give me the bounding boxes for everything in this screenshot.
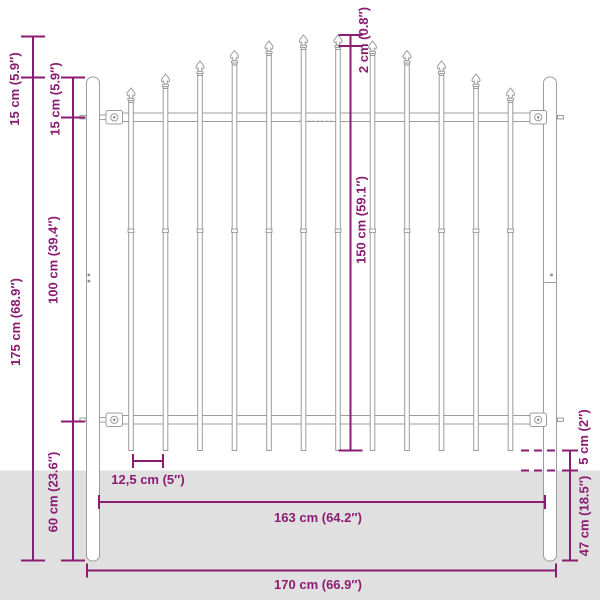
bottom-right-bracket <box>530 413 564 427</box>
fence-bar-6 <box>300 35 308 451</box>
spear-base <box>336 48 341 50</box>
fence-bar-8 <box>369 41 377 451</box>
spear-base <box>405 63 410 65</box>
spear-finial-icon <box>300 35 308 45</box>
fence-bar-11 <box>472 74 480 451</box>
spear-base <box>232 63 237 65</box>
bar-joint-sleeve <box>335 229 341 232</box>
fence-bar-5 <box>265 41 273 451</box>
dim-label-total-width: 170 cm (66.9″) <box>274 577 362 592</box>
bar-joint-sleeve <box>197 229 203 232</box>
right-post <box>544 77 557 561</box>
bar-shaft <box>508 102 513 450</box>
spear-base <box>508 101 513 103</box>
bar-shaft <box>198 75 203 450</box>
dim-label-post-underground: 47 cm (18.5″) <box>577 476 592 557</box>
dim-label-arch-rise: 15 cm (5.9″) <box>7 52 22 125</box>
dim-label-rail-to-rail: 100 cm (39.4″) <box>46 216 61 304</box>
spear-finial-icon <box>507 88 515 98</box>
bar-shaft <box>232 65 237 451</box>
bar-shaft <box>439 75 444 450</box>
spear-finial-icon <box>162 74 170 84</box>
spear-base <box>439 74 444 76</box>
spear-finial-icon <box>231 51 239 61</box>
fence-bar-7 <box>334 35 342 451</box>
dim-label-post-top-to-rail: 15 cm (5.9″) <box>48 62 63 135</box>
fence-bar-10 <box>438 61 446 451</box>
spear-base <box>267 54 272 56</box>
bar-shaft <box>129 102 134 450</box>
diagram-canvas: 15 cm (5.9″) 15 cm (5.9″) 175 cm (68.9″)… <box>0 0 600 600</box>
spear-finial-icon <box>265 41 273 51</box>
spear-finial-icon <box>127 88 135 98</box>
bar-joint-sleeve <box>439 229 445 232</box>
bar-joint-sleeve <box>266 229 272 232</box>
dim-label-rail-to-post-bottom: 60 cm (23.6″) <box>46 452 61 533</box>
bar-joint-sleeve <box>404 229 410 232</box>
bar-shaft <box>405 65 410 451</box>
bar-shaft <box>301 49 306 450</box>
spear-base <box>129 101 134 103</box>
bar-shaft <box>267 55 272 450</box>
fence-bars <box>127 35 514 451</box>
bar-shaft <box>370 55 375 450</box>
spear-finial-icon <box>196 61 204 71</box>
dim-label-bar-step: 2 cm (0.8″) <box>356 7 371 73</box>
dim-label-bar-length: 150 cm (59.1″) <box>354 176 369 264</box>
bar-shaft <box>474 88 479 450</box>
spear-base <box>163 87 168 89</box>
fence-dimension-diagram: 15 cm (5.9″) 15 cm (5.9″) 175 cm (68.9″)… <box>0 0 600 600</box>
fence-bar-1 <box>127 88 135 451</box>
left-post <box>87 77 100 561</box>
bar-joint-sleeve <box>370 229 376 232</box>
bar-shaft <box>336 49 341 450</box>
fence-bar-4 <box>231 51 239 451</box>
bar-joint-sleeve <box>301 229 307 232</box>
fence-bar-9 <box>403 51 411 451</box>
bottom-rail <box>122 416 531 425</box>
spear-finial-icon <box>472 74 480 84</box>
dim-label-inner-width: 163 cm (64.2″) <box>274 510 362 525</box>
spear-finial-icon <box>334 35 342 45</box>
bar-joint-sleeve <box>473 229 479 232</box>
fence-bar-12 <box>507 88 515 451</box>
left-post-screw-icon <box>88 274 91 277</box>
bar-shaft <box>163 88 168 450</box>
spear-base <box>474 87 479 89</box>
spear-base <box>198 74 203 76</box>
spear-base <box>301 48 306 50</box>
dim-label-ground-clearance: 5 cm (2″) <box>576 409 591 464</box>
bar-joint-sleeve <box>128 229 134 232</box>
bar-joint-sleeve <box>163 229 169 232</box>
fence-bar-2 <box>162 74 170 451</box>
bar-joint-sleeve <box>232 229 238 232</box>
top-right-bracket <box>530 111 564 125</box>
left-post-screw-icon <box>88 280 91 283</box>
fence-bar-3 <box>196 61 204 451</box>
spear-finial-icon <box>403 51 411 61</box>
right-post-screw-icon <box>550 274 553 277</box>
bar-joint-sleeve <box>508 229 514 232</box>
dim-label-bar-spacing: 12,5 cm (5″) <box>111 472 184 487</box>
spear-finial-icon <box>438 61 446 71</box>
dim-label-post-height: 175 cm (68.9″) <box>8 278 23 366</box>
